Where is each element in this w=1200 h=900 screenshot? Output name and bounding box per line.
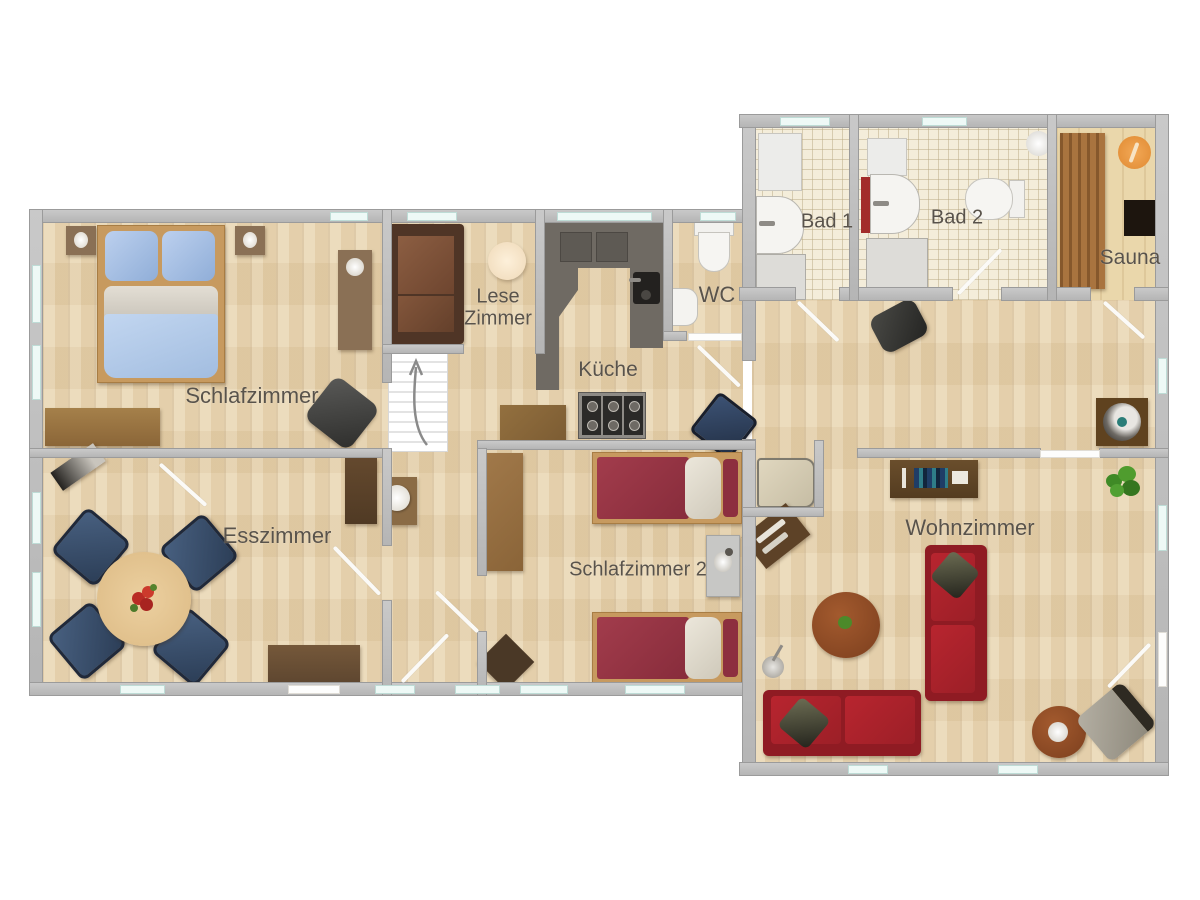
wc-sink bbox=[671, 288, 698, 326]
wall bbox=[478, 449, 486, 575]
bed-blanket bbox=[104, 314, 218, 378]
flower bbox=[140, 598, 153, 611]
wall bbox=[743, 115, 755, 360]
alcove-cabinet bbox=[757, 458, 815, 508]
room-label-lesezimmer-line2: Zimmer bbox=[464, 308, 532, 331]
window bbox=[998, 765, 1038, 774]
bad2-cabinet bbox=[867, 138, 907, 176]
window bbox=[557, 212, 652, 221]
lamp-icon bbox=[74, 232, 88, 248]
wall bbox=[478, 441, 755, 449]
wardrobe-rug bbox=[483, 453, 523, 571]
wall bbox=[743, 440, 755, 775]
window bbox=[32, 265, 41, 323]
burner bbox=[629, 401, 640, 412]
window bbox=[700, 212, 736, 221]
room-label-schlafzimmer2: Schlafzimmer 2 bbox=[569, 559, 707, 582]
dining-cabinet bbox=[345, 458, 377, 524]
cabinet-door bbox=[560, 232, 592, 262]
faucet bbox=[873, 201, 889, 206]
wall bbox=[740, 763, 1168, 775]
stove bbox=[578, 392, 646, 439]
kitchen-island bbox=[500, 405, 566, 441]
wall bbox=[1100, 449, 1168, 457]
sauna-light-mark bbox=[1129, 142, 1140, 163]
sofa-horizontal bbox=[763, 690, 921, 756]
flower-bouquet bbox=[130, 584, 158, 614]
wall bbox=[858, 449, 1040, 457]
nightstand-left bbox=[66, 226, 96, 255]
hall-basin-stand bbox=[1096, 398, 1148, 446]
sauna-bench bbox=[1060, 133, 1105, 289]
sauna-light-icon bbox=[1118, 136, 1151, 169]
plant-leaf bbox=[1122, 480, 1140, 496]
books-row bbox=[914, 468, 948, 488]
room-label-esszimmer: Esszimmer bbox=[223, 523, 332, 549]
wall bbox=[536, 210, 544, 353]
kitchen-sink bbox=[633, 272, 660, 304]
pillow bbox=[685, 457, 721, 519]
room-label-wohnzimmer: Wohnzimmer bbox=[905, 515, 1034, 541]
toilet-bowl bbox=[698, 232, 730, 272]
sink-drain bbox=[641, 290, 651, 300]
window bbox=[330, 212, 368, 221]
mug bbox=[1048, 722, 1068, 742]
dining-sideboard bbox=[268, 645, 360, 682]
wall bbox=[740, 288, 795, 300]
wall bbox=[743, 508, 823, 516]
staircase bbox=[388, 352, 448, 452]
wall bbox=[383, 345, 463, 353]
reading-side-table bbox=[488, 242, 526, 280]
hall-basin-drain bbox=[1117, 417, 1127, 427]
burner bbox=[608, 401, 619, 412]
wall bbox=[815, 441, 823, 512]
headboard-cushion bbox=[723, 619, 738, 677]
burner bbox=[587, 401, 598, 412]
pillow bbox=[685, 617, 721, 679]
pillow bbox=[162, 231, 215, 281]
burner bbox=[608, 420, 619, 431]
stairs-up-arrow-icon bbox=[389, 353, 449, 453]
faucet bbox=[629, 278, 641, 282]
coffee-table bbox=[812, 592, 880, 658]
side-table bbox=[1032, 706, 1086, 758]
headboard-cushion bbox=[723, 459, 738, 517]
room-label-bad2: Bad 2 bbox=[931, 207, 983, 230]
window bbox=[32, 572, 41, 627]
book-stack bbox=[952, 471, 968, 484]
bedroom-sideboard bbox=[45, 408, 160, 446]
dining-table bbox=[97, 552, 191, 646]
sofa-cushion bbox=[398, 296, 454, 332]
window bbox=[120, 685, 165, 694]
wc-door bbox=[688, 333, 742, 341]
window bbox=[32, 492, 41, 544]
sofa-cushion bbox=[398, 236, 454, 294]
faucet bbox=[759, 221, 775, 226]
window bbox=[922, 117, 967, 126]
bad1-washer bbox=[758, 133, 802, 191]
wc-toilet bbox=[694, 220, 732, 272]
window bbox=[625, 685, 685, 694]
room-label-bad1: Bad 1 bbox=[801, 211, 853, 234]
wohnzimmer-door bbox=[1040, 450, 1100, 458]
nightstand-right bbox=[235, 226, 265, 255]
bed-blanket bbox=[597, 617, 689, 679]
kitchen-counter-top bbox=[536, 222, 663, 268]
nightstand-item bbox=[725, 548, 733, 556]
entrance-door bbox=[288, 685, 340, 694]
sofa-vertical bbox=[925, 545, 987, 701]
reading-sofa bbox=[388, 224, 464, 344]
sauna-heater bbox=[1124, 200, 1157, 236]
wall bbox=[664, 210, 672, 340]
cabinet-door bbox=[596, 232, 628, 262]
single-bed-1 bbox=[592, 452, 742, 524]
wall bbox=[383, 601, 391, 695]
window bbox=[32, 345, 41, 400]
plant-leaf bbox=[1110, 484, 1124, 497]
window bbox=[1158, 505, 1167, 551]
sofa-cushion bbox=[931, 625, 975, 693]
bad1-sink bbox=[756, 196, 804, 254]
leaf bbox=[150, 584, 157, 591]
window bbox=[848, 765, 888, 774]
lamp-icon bbox=[243, 232, 257, 248]
window bbox=[520, 685, 568, 694]
book bbox=[902, 468, 906, 488]
room-label-lesezimmer-line1: Lese bbox=[476, 286, 519, 309]
leaf bbox=[130, 604, 138, 612]
wall bbox=[1002, 288, 1090, 300]
wall bbox=[850, 115, 858, 300]
desk-lamp-icon bbox=[346, 258, 364, 276]
bedroom-desk bbox=[338, 250, 372, 350]
tv-stand bbox=[890, 460, 978, 498]
wall bbox=[1135, 288, 1168, 300]
sofa-cushion bbox=[845, 696, 915, 744]
burner bbox=[587, 420, 598, 431]
pillow bbox=[105, 231, 158, 281]
window bbox=[780, 117, 830, 126]
double-bed bbox=[97, 225, 225, 383]
wall bbox=[664, 332, 686, 340]
floor-lamp-icon bbox=[760, 644, 794, 678]
room-label-sauna: Sauna bbox=[1100, 246, 1161, 270]
window bbox=[375, 685, 415, 694]
bed-blanket bbox=[597, 457, 689, 519]
bad2-towel bbox=[861, 177, 870, 233]
window bbox=[407, 212, 457, 221]
potted-plant-icon bbox=[1106, 466, 1142, 500]
room-label-kueche: Küche bbox=[578, 358, 638, 382]
floor-plan: Schlafzimmer Lese Zimmer Küche WC Bad 1 … bbox=[0, 0, 1200, 900]
wall bbox=[383, 449, 391, 545]
room-label-schlafzimmer: Schlafzimmer bbox=[185, 383, 318, 409]
single-bed-2 bbox=[592, 612, 742, 684]
room-label-wc: WC bbox=[699, 282, 736, 308]
terrace-door bbox=[1158, 632, 1167, 687]
bad2-sink bbox=[870, 174, 920, 234]
wall bbox=[30, 449, 390, 457]
table-plant bbox=[838, 616, 852, 629]
wall bbox=[1048, 115, 1056, 300]
window bbox=[455, 685, 500, 694]
burner bbox=[629, 420, 640, 431]
wall bbox=[383, 210, 391, 382]
bedroom2-nightstand bbox=[706, 535, 740, 597]
window bbox=[1158, 358, 1167, 394]
